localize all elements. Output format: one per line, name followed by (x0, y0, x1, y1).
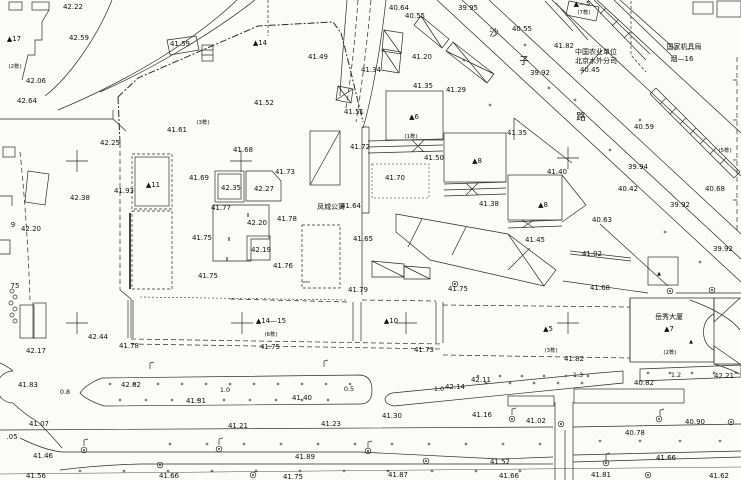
width-dimension-label: 0.5 (344, 385, 354, 393)
building-number-label: ▲14 (253, 39, 268, 47)
median-dot (533, 382, 536, 385)
median-dot (354, 443, 357, 446)
tree-symbol (157, 462, 163, 468)
median-dot (243, 443, 246, 446)
median-dot (325, 383, 328, 386)
elevation-label: 40.82 (634, 379, 654, 387)
elevation-label: 41.56 (26, 472, 47, 480)
elevation-label: 42.44 (88, 333, 109, 341)
elevation-label: 41.16 (472, 411, 493, 419)
elevation-label: 42.22 (63, 3, 83, 11)
survey-grid-cross (557, 147, 579, 169)
elevation-label: 41.87 (388, 471, 408, 479)
tree-symbol (709, 287, 715, 293)
map-symbol-mark: ▲ (689, 339, 693, 345)
elevation-label: 39.95 (458, 4, 478, 12)
elevation-label: 42.11 (471, 376, 491, 384)
pole-symbol (150, 362, 154, 369)
survey-grid-cross (66, 150, 88, 172)
elevation-label: 41.75 (192, 234, 212, 242)
median-dot (489, 104, 492, 107)
elevation-label: 40.63 (592, 216, 612, 224)
median-dot (223, 399, 226, 402)
median-dot (119, 399, 122, 402)
map-symbol-mark: II (226, 257, 229, 263)
elevation-label: 42.06 (26, 77, 47, 85)
elevation-label: 41.68 (590, 284, 610, 292)
elevation-label: 41.35 (413, 82, 433, 90)
place-name-label: 岳秀大厦 (655, 312, 683, 321)
fengcheng-compound (120, 127, 369, 338)
elevation-label: 41.75 (198, 272, 218, 280)
median-dot (574, 99, 577, 102)
building-number-label: ▲5 (543, 325, 553, 333)
survey-grid-cross (66, 312, 88, 334)
elevation-label: 40.78 (625, 429, 645, 437)
median-dot (509, 382, 512, 385)
elevation-label: 41.73 (275, 168, 295, 176)
median-dot (249, 399, 252, 402)
elevation-label: 40.68 (705, 185, 725, 193)
median-dot (524, 44, 527, 47)
elevation-label: 41.65 (353, 235, 373, 243)
median-dot (543, 375, 546, 378)
elevation-label: 40.55 (512, 25, 532, 33)
elevation-label: 41.82 (554, 42, 574, 50)
elevation-label: 75 (11, 282, 20, 290)
median-dot (679, 440, 682, 443)
shrub-symbol (13, 295, 17, 299)
elevation-label: 42.25 (100, 139, 120, 147)
building-number-label: ▲8 (472, 157, 482, 165)
street-name-char: 子 (519, 56, 529, 67)
survey-map-screenshot: 42.2242.5942.0642.6441.5941.6141.4941.52… (0, 0, 741, 480)
south-streets (0, 363, 741, 480)
elevation-label: 41.75 (260, 343, 280, 351)
median-dot (277, 383, 280, 386)
median-dot (719, 440, 722, 443)
survey-map-canvas: 42.2242.5942.0642.6441.5941.6141.4941.52… (0, 0, 741, 480)
tree-symbol (509, 416, 515, 422)
elevation-label: .05 (6, 433, 17, 441)
pole-symbol (660, 409, 664, 416)
elevation-label: 41.30 (382, 412, 402, 420)
median-dot (206, 443, 209, 446)
elevation-label: 41.76 (273, 262, 294, 270)
tree-symbol (365, 448, 371, 454)
median-dot (548, 87, 551, 90)
median-dot (301, 383, 304, 386)
elevation-label: 41.78 (119, 342, 139, 350)
median-dot (609, 149, 612, 152)
elevation-label: 41.52 (490, 458, 510, 466)
unit-count-label: (1栋) (404, 132, 417, 140)
elevation-label: 40.59 (634, 123, 654, 131)
elevation-label: 41.29 (446, 86, 466, 94)
elevation-label: 39.92 (530, 69, 550, 77)
elevation-label: 41.23 (321, 420, 341, 428)
tree-symbol (250, 472, 256, 478)
median-dot (205, 383, 208, 386)
building-number-label: ▲8 (538, 201, 548, 209)
elevation-label: 42.19 (251, 246, 271, 254)
elevation-label: 41.35 (507, 129, 527, 137)
pole-symbol (512, 408, 516, 415)
pole-symbol (368, 441, 372, 448)
median-dot (735, 372, 738, 375)
elevation-label: 41.02 (582, 250, 602, 258)
elevation-label: 42.02 (121, 381, 141, 389)
elevation-label: 41.20 (412, 53, 432, 61)
building-number-label: ▲6 (409, 113, 419, 121)
elevation-label: 40.45 (580, 66, 600, 74)
median-dot (229, 383, 232, 386)
elevation-label: 41.46 (33, 452, 54, 460)
unit-count-label: (3栋) (196, 118, 209, 126)
median-dot (565, 375, 568, 378)
elevation-label: 42.20 (247, 219, 267, 227)
elevation-label: 42.20 (21, 225, 41, 233)
south-compound (128, 251, 741, 374)
elevation-label: 42.14 (445, 383, 466, 391)
elevation-label: 39.92 (713, 245, 733, 253)
elevation-label: 41.40 (547, 168, 567, 176)
unit-count-label: (2栋) (8, 62, 21, 70)
elevation-label: 41.77 (211, 204, 231, 212)
elevation-label: 41.69 (189, 174, 209, 182)
elevation-label: 40.64 (389, 4, 410, 12)
elevation-label: 42.59 (69, 34, 89, 42)
elevation-label: 41.45 (525, 236, 545, 244)
building-number-label: ▲—5 (574, 0, 591, 8)
median-dot (391, 443, 394, 446)
top-center-parcel (118, 0, 363, 143)
elevation-label: 39.92 (670, 201, 690, 209)
elevation-label: 41.31 (186, 397, 206, 405)
shrub-symbol (13, 319, 17, 323)
construction-strips (372, 214, 556, 286)
place-name-label: 北京水外分司 (575, 56, 617, 65)
median-dot (275, 399, 278, 402)
elevation-label: 42.27 (254, 185, 274, 193)
tree-symbol (216, 446, 222, 452)
median-dot (280, 443, 283, 446)
median-dot (465, 443, 468, 446)
elevation-label: 41.73 (414, 346, 434, 354)
shrub-symbol (9, 301, 13, 305)
elevation-label: 41.51 (344, 108, 364, 116)
elevation-label: 40.90 (685, 418, 705, 426)
median-dot (253, 383, 256, 386)
building-number-label: ▲17 (7, 35, 21, 43)
elevation-label: 41.83 (18, 381, 38, 389)
median-dot (123, 470, 126, 473)
elevation-label: 41.52 (254, 99, 274, 107)
survey-grid-cross (395, 312, 417, 334)
topleft-road (0, 0, 255, 338)
pole-symbol (84, 439, 88, 446)
elevation-label: 9 (11, 221, 15, 229)
median-dot (299, 470, 302, 473)
tree-symbol (656, 416, 662, 422)
elevation-label: 41.66 (656, 454, 677, 462)
elevation-label: 41.72 (350, 143, 370, 151)
median-dot (343, 470, 346, 473)
median-dot (539, 443, 542, 446)
elevation-label: 41.40 (292, 394, 312, 402)
median-dot (79, 470, 82, 473)
unit-count-label: (7栋) (577, 8, 590, 16)
median-dot (664, 231, 667, 234)
median-dot (647, 372, 650, 375)
median-dot (521, 375, 524, 378)
elevation-label: 41.61 (167, 126, 187, 134)
elevation-label: 42.38 (70, 194, 90, 202)
shrub-symbol (10, 313, 14, 317)
elevation-label: 41.68 (233, 146, 253, 154)
median-dot (587, 375, 590, 378)
street-name-char: 沙 (489, 28, 499, 39)
median-dot (428, 443, 431, 446)
survey-grid-cross (557, 312, 579, 334)
building-number-label: ▲14—15 (256, 317, 286, 325)
unit-count-label: (5栋) (718, 146, 731, 154)
survey-grid-cross (231, 312, 253, 334)
place-name-label: 凤城公寓 (317, 202, 345, 211)
elevation-label: 42.17 (26, 347, 46, 355)
tree-symbol (423, 458, 429, 464)
elevation-label: 41.50 (424, 154, 444, 162)
tree-symbol (667, 288, 673, 294)
elevation-label: 41.02 (526, 417, 546, 425)
elevation-label: 40.42 (618, 185, 638, 193)
elevation-label: 41.93 (114, 187, 134, 195)
unit-count-label: (2栋) (663, 348, 676, 356)
median-dot (157, 383, 160, 386)
shrub-symbol (13, 307, 17, 311)
elevation-label: 41.79 (348, 286, 368, 294)
elevation-label: 41.89 (295, 453, 315, 461)
elevation-label: 41.38 (479, 200, 499, 208)
median-dot (317, 443, 320, 446)
elevation-label: 42.35 (221, 184, 241, 192)
median-dot (639, 119, 642, 122)
unit-count-label: (6栋) (264, 330, 277, 338)
median-dot (502, 443, 505, 446)
elevation-label: 41.78 (277, 215, 297, 223)
elevation-label: 41.34 (361, 66, 382, 74)
building-number-label: ▲7 (664, 325, 674, 333)
elevation-label: 39.94 (628, 163, 649, 171)
map-text-layer: 42.2242.5942.0642.6441.5941.6141.4941.52… (6, 0, 734, 480)
place-name-label: 烟—16 (671, 54, 694, 63)
elevation-label: 41.70 (385, 174, 405, 182)
map-symbol-mark: II (247, 213, 250, 219)
width-dimension-label: 1.3 (573, 371, 583, 379)
median-dot (499, 375, 502, 378)
elevation-label: 40.55 (405, 12, 425, 20)
elevation-label: 41.21 (228, 422, 248, 430)
width-dimension-label: 1.2 (671, 371, 681, 379)
tree-symbol (558, 421, 564, 427)
elevation-label: 41.59 (170, 40, 190, 48)
elevation-label: 41.66 (499, 472, 520, 480)
median-dot (691, 372, 694, 375)
median-dot (557, 382, 560, 385)
building-number-label: ▲10 (384, 317, 398, 325)
street-name-char: 路 (576, 111, 586, 123)
median-dot (171, 399, 174, 402)
unit-count-label: (3栋) (544, 346, 557, 354)
median-dot (599, 440, 602, 443)
tree-symbol (645, 472, 651, 478)
elevation-label: 41.81 (591, 471, 611, 479)
pole-symbol (219, 438, 223, 445)
elevation-label: 41.07 (29, 420, 49, 428)
pole-symbol (324, 360, 328, 367)
elevation-label: 41.75 (283, 473, 303, 480)
center-buildings (302, 91, 586, 288)
map-symbol-mark: ▲ (657, 271, 661, 277)
width-dimension-label: 1.0 (220, 386, 230, 394)
elevation-label: 41.62 (709, 472, 729, 480)
map-symbol-mark: II (228, 237, 231, 243)
median-dot (327, 399, 330, 402)
elevation-label: 41.75 (448, 285, 468, 293)
median-dot (475, 470, 478, 473)
median-dot (169, 443, 172, 446)
median-dot (145, 399, 148, 402)
median-dot (109, 383, 112, 386)
elevation-label: 42.64 (17, 97, 38, 105)
median-dot (639, 440, 642, 443)
median-dot (699, 261, 702, 264)
elevation-label: 41.82 (564, 355, 584, 363)
width-dimension-label: 1.0 (434, 385, 444, 393)
place-name-label: 中国农业单位 (575, 47, 617, 56)
elevation-label: 42.21 (714, 372, 734, 380)
place-name-label: 国家机具局 (667, 42, 702, 51)
median-dot (581, 382, 584, 385)
building-number-label: ▲11 (146, 181, 160, 189)
width-dimension-label: 0.8 (60, 388, 70, 396)
elevation-label: 41.66 (159, 472, 180, 480)
median-dot (255, 470, 258, 473)
median-dot (181, 383, 184, 386)
elevation-label: 41.49 (308, 53, 328, 61)
